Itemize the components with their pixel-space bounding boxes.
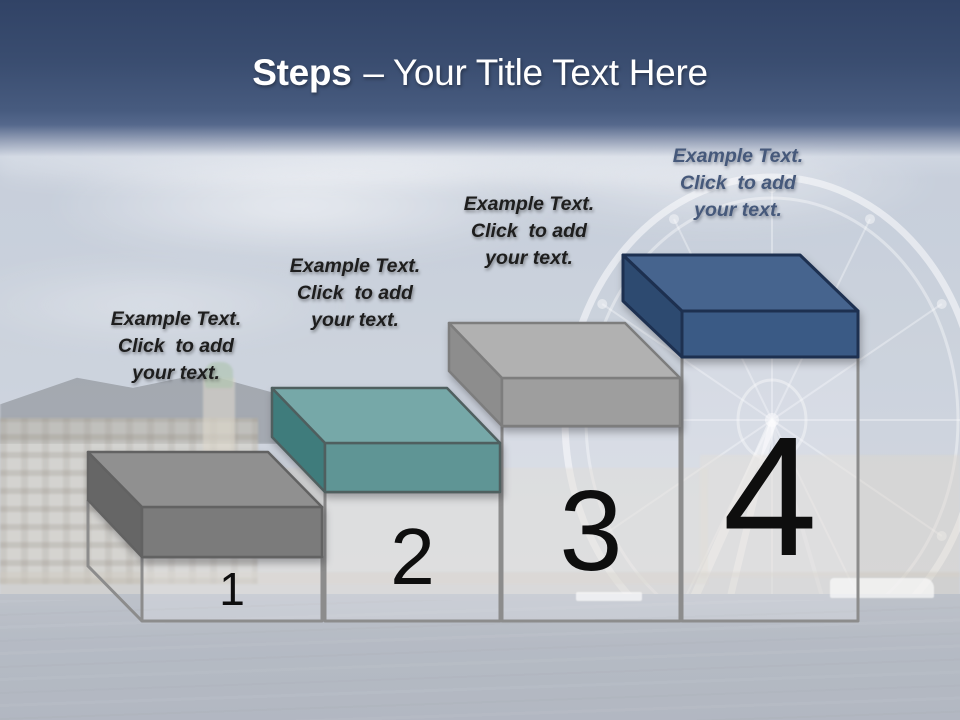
- step-3-slab[interactable]: [449, 323, 680, 426]
- step-4-slab-front: [682, 311, 858, 357]
- step-2-slab[interactable]: [272, 388, 500, 492]
- step-1-number[interactable]: 1: [142, 560, 322, 618]
- step-4-number[interactable]: 4: [682, 404, 858, 590]
- step-2-slab-front: [325, 443, 500, 492]
- step-2-number[interactable]: 2: [325, 514, 500, 600]
- step-4-placeholder-text[interactable]: Example Text. Click to add your text.: [623, 143, 853, 224]
- step-1-slab[interactable]: [88, 452, 322, 557]
- slide: Steps– Your Title Text Here: [0, 0, 960, 720]
- step-3-placeholder-text[interactable]: Example Text. Click to add your text.: [414, 191, 644, 272]
- step-4-slab[interactable]: [623, 255, 858, 357]
- step-3-number[interactable]: 3: [502, 472, 680, 590]
- step-3-slab-front: [502, 378, 680, 426]
- step-1-slab-front: [142, 507, 322, 557]
